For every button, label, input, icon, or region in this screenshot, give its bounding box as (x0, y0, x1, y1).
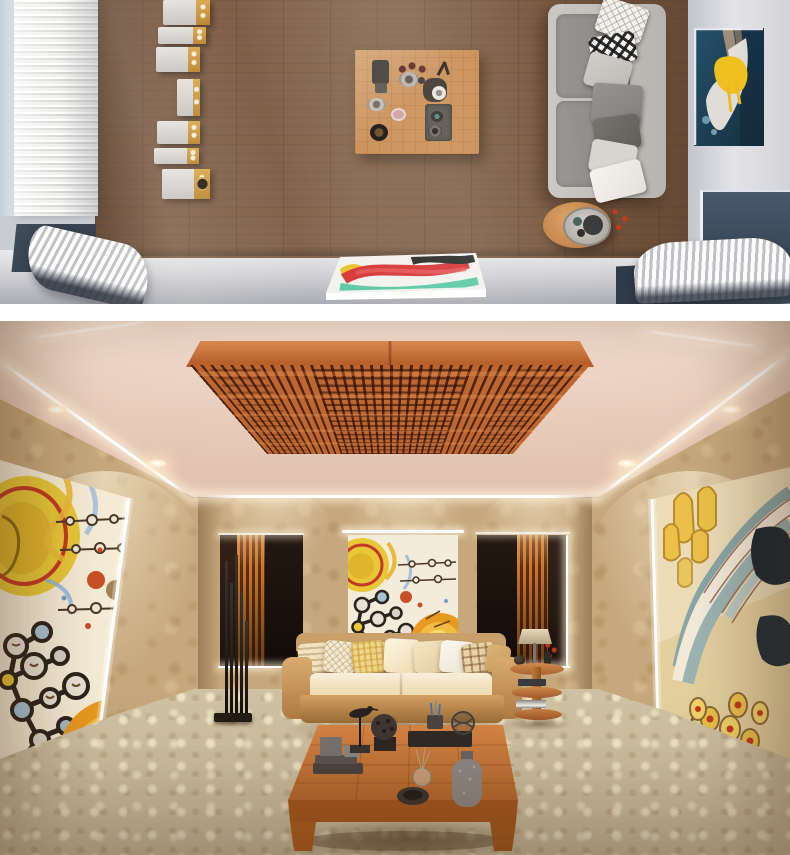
speaker-baffle (196, 0, 210, 25)
speaker-cabinet (163, 0, 210, 25)
rod-floor-lamp-base (214, 713, 252, 722)
tray-cup (573, 217, 582, 226)
speaker-cabinet (156, 47, 200, 72)
niche-led-top (475, 532, 570, 534)
downlight (146, 459, 168, 468)
white-plate (432, 86, 446, 100)
tapestry-led (342, 530, 464, 533)
lamp-rod (230, 583, 233, 714)
lamp-rod (225, 561, 228, 714)
tabletop-device-base (375, 83, 387, 93)
coffee-table (280, 701, 528, 855)
plate (367, 98, 386, 111)
books (518, 679, 546, 686)
downlight (616, 459, 638, 468)
speaker-cabinet (154, 148, 199, 164)
niche-led-top (218, 533, 304, 535)
render-perspective-view (0, 321, 790, 855)
utensil (443, 62, 450, 75)
speaker-cabinet (162, 169, 210, 199)
speaker-baffle (187, 148, 199, 164)
round-side-table (543, 202, 611, 248)
tray-bowl (583, 215, 603, 235)
lamp-rod (245, 621, 248, 714)
coffee-table-top-view (355, 50, 479, 154)
tray-cup (577, 229, 585, 237)
side-table-tier (512, 687, 562, 698)
downlight (720, 405, 742, 414)
speaker-baffle (193, 79, 200, 116)
speaker-cabinet (177, 79, 200, 116)
speaker-cabinet (158, 27, 206, 44)
lamp-rod (235, 555, 238, 714)
abstract-painting-teal-yellow (694, 28, 764, 146)
render-top-view (0, 0, 790, 304)
red-berries (610, 206, 634, 234)
niche-led-side (566, 535, 568, 667)
led-cove-back (192, 495, 598, 498)
table-tray (563, 207, 611, 246)
plate (399, 72, 419, 87)
image-divider (0, 304, 790, 321)
table-lamp-shade (518, 629, 552, 644)
decor-cluster (423, 78, 447, 102)
lamp-rod (240, 593, 243, 714)
speaker-baffle (188, 121, 200, 144)
table-lamp-stem (533, 643, 536, 665)
tabletop-device (372, 60, 389, 84)
ceiling-diffuser-edge (186, 341, 594, 367)
speaker-baffle (188, 47, 200, 72)
pink-dish (391, 108, 406, 121)
page (0, 0, 790, 855)
ribbed-acoustic-panel (14, 0, 98, 216)
speaker-baffle (193, 27, 206, 44)
painted-canvas (326, 247, 486, 301)
downlight (46, 405, 68, 414)
speaker-port (197, 177, 208, 191)
bowl (431, 111, 443, 122)
left-wall-edge (0, 0, 15, 216)
pillow-yellow-check (350, 639, 387, 674)
curved-diffuser-right (633, 236, 790, 304)
black-vase (370, 124, 388, 141)
speaker-cabinet (157, 121, 200, 144)
serving-tray (425, 104, 452, 141)
bowl (428, 125, 442, 137)
